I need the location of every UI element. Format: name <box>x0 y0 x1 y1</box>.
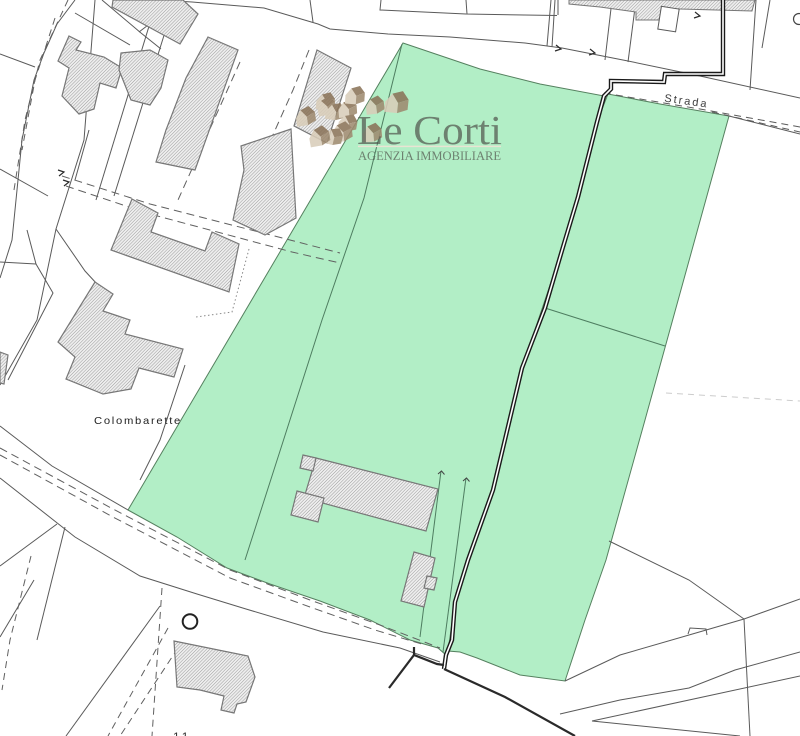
svg-text:Colombarette: Colombarette <box>94 415 182 427</box>
svg-text:AGENZIA IMMOBILIARE: AGENZIA IMMOBILIARE <box>358 148 501 163</box>
svg-text:11: 11 <box>173 730 191 736</box>
